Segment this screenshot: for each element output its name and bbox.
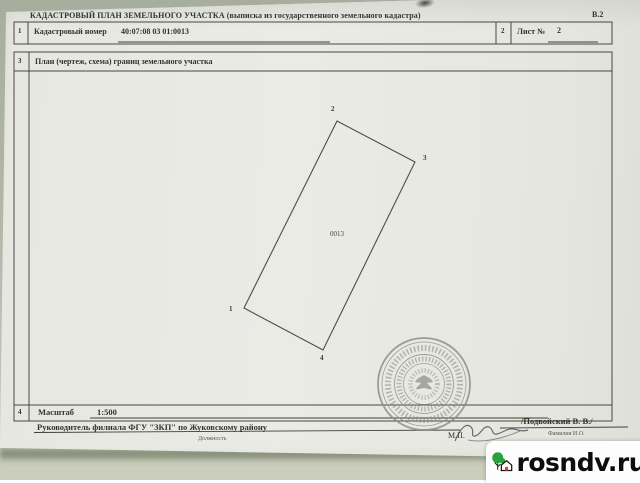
signer-name: /Подвойский В. В./ (521, 417, 593, 426)
vertex-label-1: 1 (229, 306, 233, 313)
tree-house-logo-icon (491, 445, 514, 479)
row3-number: 3 (18, 58, 22, 65)
plan-header: План (чертеж, схема) границ земельного у… (35, 58, 212, 66)
signature-scribble (455, 425, 528, 441)
row2-number: 2 (501, 28, 505, 35)
stamp-place-label: М.П. (448, 432, 465, 440)
vertex-label-3: 3 (423, 155, 427, 162)
watermark-text: rosndv.ru (517, 448, 640, 477)
vertex-label-4: 4 (320, 355, 324, 362)
head-position-line: Руководитель филиала ФГУ "ЗКП" по Жуковс… (37, 423, 267, 432)
form-code: В.2 (592, 11, 603, 19)
photo-of-cadastral-plan: КАДАСТРОВЫЙ ПЛАН ЗЕМЕЛЬНОГО УЧАСТКА (вып… (0, 0, 640, 480)
table-and-plan-drawing (0, 0, 640, 480)
sheet-value: 2 (557, 27, 561, 35)
official-stamp-icon (378, 338, 470, 430)
site-watermark: rosndv.ru (486, 441, 640, 483)
position-caption: Должность (198, 436, 227, 442)
cadastral-number-label: Кадастровый номер (34, 28, 107, 36)
cadastral-number-value: 40:07:08 03 01:0013 (121, 28, 189, 36)
photo-artifact (414, 0, 435, 9)
document-title: КАДАСТРОВЫЙ ПЛАН ЗЕМЕЛЬНОГО УЧАСТКА (вып… (30, 12, 421, 20)
scale-value: 1:500 (97, 408, 117, 417)
sheet-label: Лист № (517, 28, 545, 36)
row1-number: 1 (18, 28, 22, 35)
vertex-label-2: 2 (331, 106, 335, 113)
scale-label: Масштаб (38, 408, 74, 417)
parcel-label: 0013 (330, 231, 344, 238)
document-paper: КАДАСТРОВЫЙ ПЛАН ЗЕМЕЛЬНОГО УЧАСТКА (вып… (0, 0, 640, 480)
signer-caption: Фамилия И.О. (548, 431, 585, 437)
row4-number: 4 (18, 409, 22, 416)
